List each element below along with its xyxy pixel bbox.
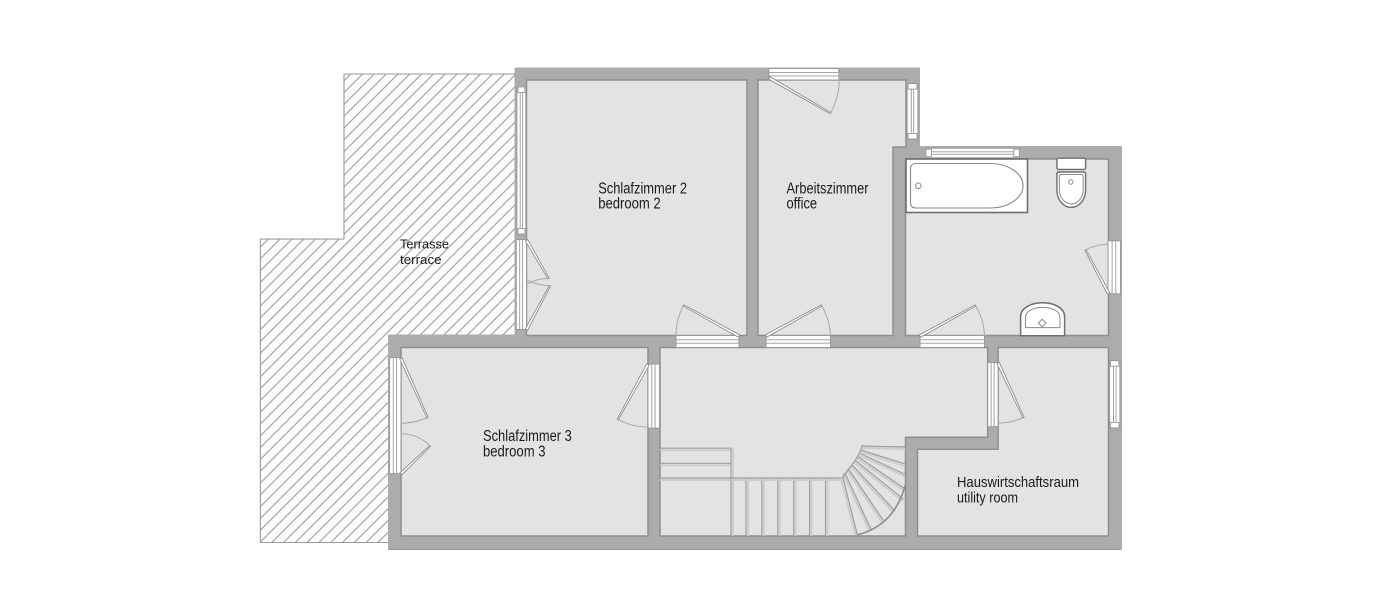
svg-text:Schlafzimmer 3: Schlafzimmer 3 bbox=[483, 428, 572, 445]
svg-text:bedroom 3: bedroom 3 bbox=[483, 444, 546, 461]
svg-text:Terrasse: Terrasse bbox=[400, 236, 449, 251]
svg-text:Hauswirtschaftsraum: Hauswirtschaftsraum bbox=[957, 475, 1079, 491]
svg-text:utility room: utility room bbox=[957, 490, 1018, 506]
svg-text:office: office bbox=[787, 196, 818, 213]
svg-text:bedroom 2: bedroom 2 bbox=[598, 196, 661, 213]
svg-text:terrace: terrace bbox=[400, 252, 442, 267]
